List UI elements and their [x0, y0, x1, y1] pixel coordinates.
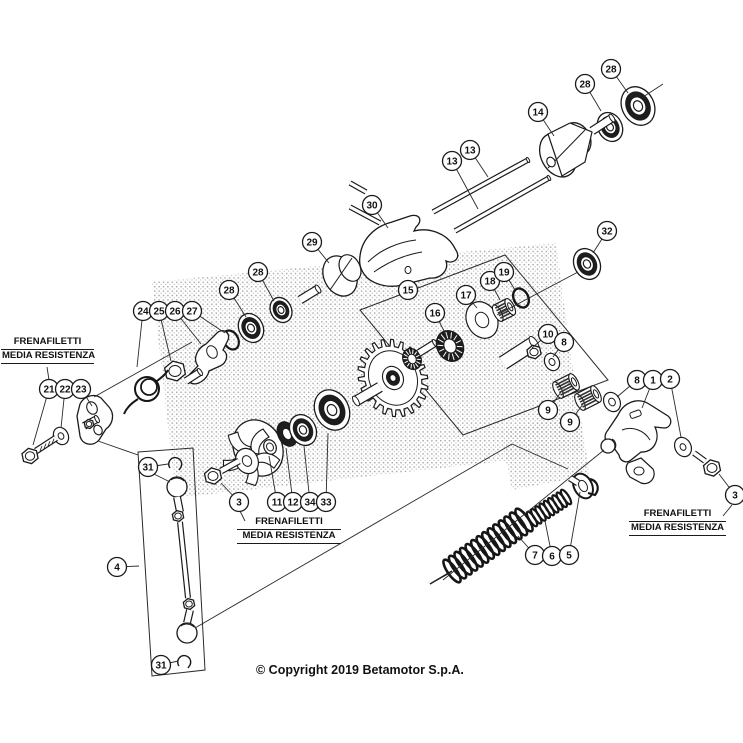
callout-7: 7: [518, 536, 545, 565]
callout-8: 8: [617, 371, 647, 398]
callout-number: 13: [446, 157, 458, 168]
callout-number: 4: [114, 563, 120, 574]
crankshaft-end-14: [532, 113, 616, 183]
link-line: [47, 367, 49, 380]
callout-number: 8: [634, 376, 640, 387]
callout-number: 23: [75, 385, 87, 396]
callout-number: 22: [59, 385, 71, 396]
callout-number: 9: [567, 418, 573, 429]
callout-number: 15: [402, 286, 414, 297]
thread-label-line2: MEDIA RESISTENZA: [237, 530, 341, 544]
link-line: [154, 474, 170, 482]
callout-number: 3: [732, 491, 738, 502]
callout-number: 21: [43, 385, 55, 396]
callout-4: 4: [108, 558, 140, 577]
callout-number: 5: [566, 551, 572, 562]
callout-number: 6: [549, 552, 555, 563]
callout-number: 28: [579, 80, 591, 91]
callout-number: 30: [366, 201, 378, 212]
callout-15: 15: [399, 281, 418, 300]
callout-number: 8: [561, 338, 567, 349]
valve-cover-foot: [626, 458, 654, 484]
callout-number: 31: [142, 463, 154, 474]
callout-number: 19: [498, 268, 510, 279]
mechanical-parts: [21, 81, 721, 668]
washer-2: [671, 434, 694, 459]
callout-14: 14: [529, 103, 555, 137]
callout-number: 10: [542, 330, 554, 341]
callout-13: 13: [461, 141, 489, 178]
callout-number: 1: [650, 376, 656, 387]
callout-number: 28: [223, 286, 235, 297]
callout-number: 28: [252, 268, 264, 279]
thread-locker-label-1: FRENAFILETTIMEDIA RESISTENZA: [237, 516, 341, 544]
callout-number: 26: [169, 307, 181, 318]
callout-number: 18: [484, 277, 496, 288]
bolt-21: [21, 438, 56, 465]
callout-number: 27: [186, 307, 198, 318]
thread-locker-label-2: FRENAFILETTIMEDIA RESISTENZA: [629, 508, 726, 536]
callout-28: 28: [576, 75, 602, 112]
callout-number: 14: [532, 108, 544, 119]
callout-6: 6: [543, 521, 562, 566]
thread-label-line1: FRENAFILETTI: [1, 336, 94, 350]
callout-number: 17: [460, 291, 472, 302]
rod-linkage-4: [167, 477, 197, 643]
callout-number: 12: [287, 498, 299, 509]
callout-number: 3: [236, 498, 242, 509]
callout-31: 31: [152, 656, 179, 675]
circlip-31-bottom: [178, 656, 191, 668]
callout-5: 5: [560, 492, 581, 565]
callout-32: 32: [593, 222, 617, 254]
exploded-parts-diagram: 2828141313303229282815161718191089981232…: [0, 0, 743, 743]
link-line: [98, 441, 138, 455]
callout-13: 13: [443, 152, 479, 210]
callout-number: 2: [667, 375, 673, 386]
thread-label-line2: MEDIA RESISTENZA: [1, 350, 94, 364]
diagram-svg: 2828141313303229282815161718191089981232…: [0, 0, 743, 743]
callout-number: 34: [304, 498, 316, 509]
callout-number: 28: [605, 65, 617, 76]
callout-number: 31: [155, 661, 167, 672]
lever-plate-23: [77, 396, 113, 445]
link-line: [430, 573, 450, 584]
callout-3: 3: [719, 474, 743, 505]
callout-31: 31: [139, 458, 169, 477]
callout-29: 29: [303, 233, 330, 264]
callout-number: 25: [153, 307, 165, 318]
callout-number: 24: [137, 307, 149, 318]
callout-number: 7: [532, 551, 538, 562]
callout-28: 28: [602, 60, 629, 94]
bearing-32: [568, 244, 605, 284]
callout-number: 29: [306, 238, 318, 249]
callout-number: 32: [601, 227, 613, 238]
thread-label-line1: FRENAFILETTI: [629, 508, 726, 522]
copyright-text: © Copyright 2019 Betamotor S.p.A.: [256, 663, 464, 677]
callout-number: 33: [320, 498, 332, 509]
bolt-3-right: [694, 453, 721, 478]
thread-locker-label-0: FRENAFILETTIMEDIA RESISTENZA: [1, 336, 94, 364]
callout-number: 16: [429, 309, 441, 320]
callout-number: 9: [545, 406, 551, 417]
thread-label-line2: MEDIA RESISTENZA: [629, 522, 726, 536]
thread-label-line1: FRENAFILETTI: [237, 516, 341, 530]
callout-number: 13: [464, 146, 476, 157]
callout-number: 11: [272, 498, 283, 509]
